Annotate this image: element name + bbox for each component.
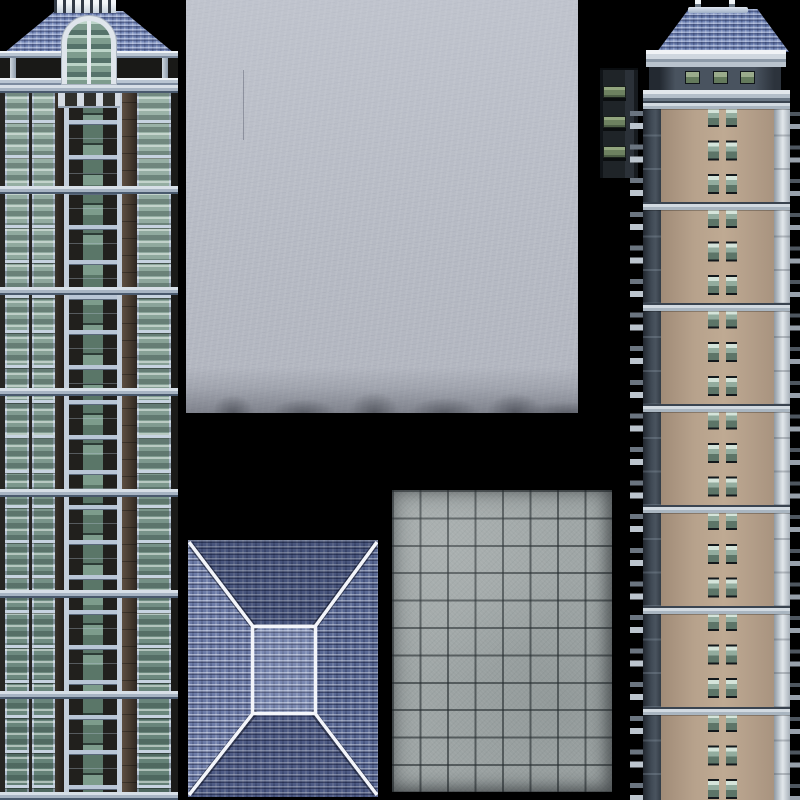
stucco-wall-sprite — [186, 0, 578, 413]
left-tower-crown-balustrade — [54, 0, 116, 13]
left-tower-post — [10, 58, 16, 78]
right-tower-sprite — [630, 0, 800, 800]
window-strip-window — [603, 146, 626, 158]
concrete-tile-floor-sprite — [392, 490, 612, 792]
right-tower-hip-roof — [657, 9, 789, 52]
left-tower-arched-window — [61, 15, 117, 85]
left-tower-facade-body — [0, 85, 178, 800]
window-strip-window — [603, 86, 626, 98]
penthouse-window — [685, 71, 700, 84]
right-tower-facade-body — [643, 101, 790, 800]
left-tower-floor-bands — [0, 85, 178, 800]
window-strip-window — [603, 116, 626, 128]
right-tower-ridge-cap — [688, 7, 748, 13]
right-tower-left-bracket-tabs — [630, 101, 643, 800]
roof-ridge-overlay — [188, 540, 378, 797]
penthouse-window — [740, 71, 755, 84]
left-tower-sprite — [0, 0, 178, 800]
penthouse-window — [713, 71, 728, 84]
hip-roof-top-sprite — [188, 540, 378, 797]
right-tower-right-bracket-tabs — [790, 101, 800, 800]
right-tower-floor-bands — [643, 101, 790, 800]
left-tower-post — [162, 58, 168, 78]
texture-atlas-canvas — [0, 0, 800, 800]
right-tower-penthouse-level — [649, 67, 781, 90]
wall-crack — [243, 70, 244, 140]
right-tower-upper-cornice — [646, 50, 786, 67]
right-tower-main-cornice — [643, 90, 790, 101]
